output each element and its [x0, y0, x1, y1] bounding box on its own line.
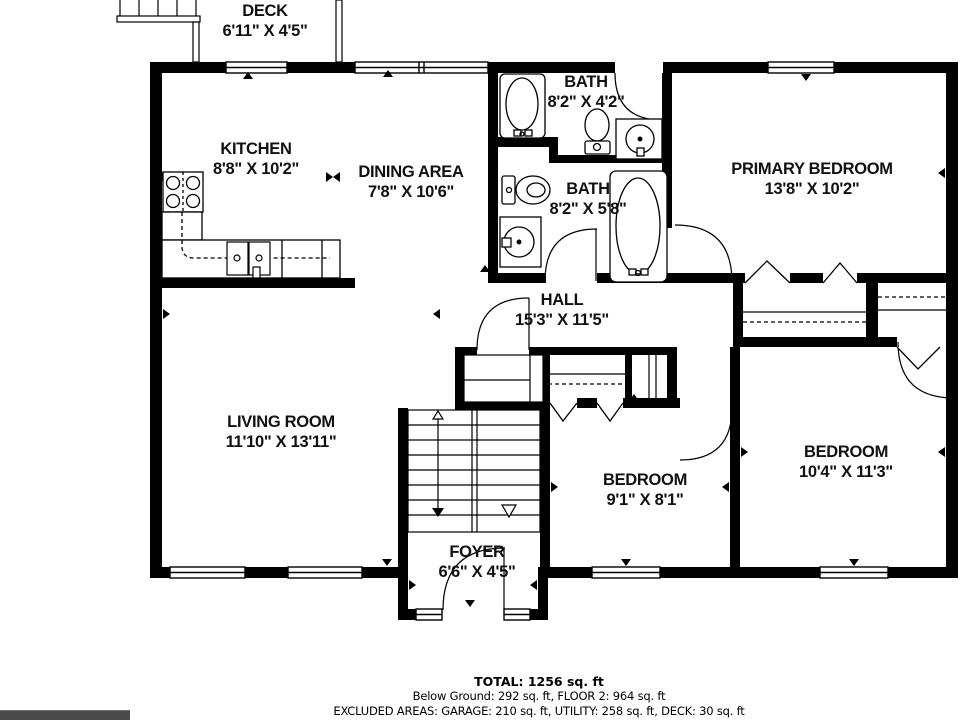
room-dims: 9'1" X 8'1" [603, 490, 687, 510]
room-dims: 15'3" X 11'5" [515, 310, 609, 330]
kitchen-sink-icon [227, 242, 270, 278]
floorplan-image: DECK 6'11" X 4'5" KITCHEN 8'8" X 10'2" D… [0, 0, 960, 720]
room-dims: 10'4" X 11'3" [799, 462, 893, 482]
room-name: BATH [549, 179, 626, 199]
bifold-door [745, 261, 790, 283]
room-name: BATH [547, 72, 624, 92]
excluded-areas-text: EXCLUDED AREAS: GARAGE: 210 sq. ft, UTIL… [333, 704, 744, 719]
area-summary: TOTAL: 1256 sq. ft Below Ground: 292 sq.… [333, 674, 744, 718]
bifold-door [897, 347, 940, 369]
bathtub-icon [500, 74, 545, 138]
bifold-door [550, 403, 577, 421]
room-dims: 8'2" X 5'8" [549, 199, 626, 219]
room-label-primary-bedroom: PRIMARY BEDROOM 13'8" X 10'2" [731, 159, 892, 199]
room-name: BEDROOM [603, 470, 687, 490]
room-dims: 6'6" X 4'5" [438, 562, 515, 582]
room-label-bath-lower: BATH 8'2" X 5'8" [549, 179, 626, 219]
room-label-kitchen: KITCHEN 8'8" X 10'2" [213, 139, 299, 179]
door-arc [680, 408, 732, 460]
room-name: PRIMARY BEDROOM [731, 159, 892, 179]
room-dims: 11'10" X 13'11" [226, 432, 337, 452]
room-label-bedroom-middle: BEDROOM 9'1" X 8'1" [603, 470, 687, 510]
stairs [408, 410, 540, 532]
room-name: BEDROOM [799, 442, 893, 462]
room-dims: 6'11" X 4'5" [222, 21, 307, 41]
room-label-living-room: LIVING ROOM 11'10" X 13'11" [226, 412, 337, 452]
toilet-icon [502, 176, 550, 204]
room-label-deck: DECK 6'11" X 4'5" [222, 1, 307, 41]
toilet-icon [585, 109, 610, 154]
door-arc [545, 229, 597, 281]
room-label-hall: HALL 15'3" X 11'5" [515, 290, 609, 330]
room-name: KITCHEN [213, 139, 299, 159]
bifold-door [597, 403, 623, 421]
stove-icon [163, 172, 203, 212]
room-dims: 8'8" X 10'2" [213, 159, 299, 179]
sink-icon [616, 119, 662, 159]
sink-icon [500, 217, 541, 267]
bifold-door [823, 263, 857, 283]
total-area-text: TOTAL: 1256 sq. ft [333, 674, 744, 689]
room-name: HALL [515, 290, 609, 310]
room-name: FOYER [438, 542, 515, 562]
room-label-bedroom-right: BEDROOM 10'4" X 11'3" [799, 442, 893, 482]
room-dims: 8'2" X 4'2" [547, 92, 624, 112]
room-name: LIVING ROOM [226, 412, 337, 432]
room-dims: 7'8" X 10'6" [358, 182, 463, 202]
room-label-foyer: FOYER 6'6" X 4'5" [438, 542, 515, 582]
room-dims: 13'8" X 10'2" [731, 179, 892, 199]
room-label-dining-area: DINING AREA 7'8" X 10'6" [358, 162, 463, 202]
bottom-bar-fragment [0, 710, 130, 720]
room-name: DECK [222, 1, 307, 21]
floor-areas-text: Below Ground: 292 sq. ft, FLOOR 2: 964 s… [333, 689, 744, 704]
room-name: DINING AREA [358, 162, 463, 182]
room-label-bath-upper: BATH 8'2" X 4'2" [547, 72, 624, 112]
